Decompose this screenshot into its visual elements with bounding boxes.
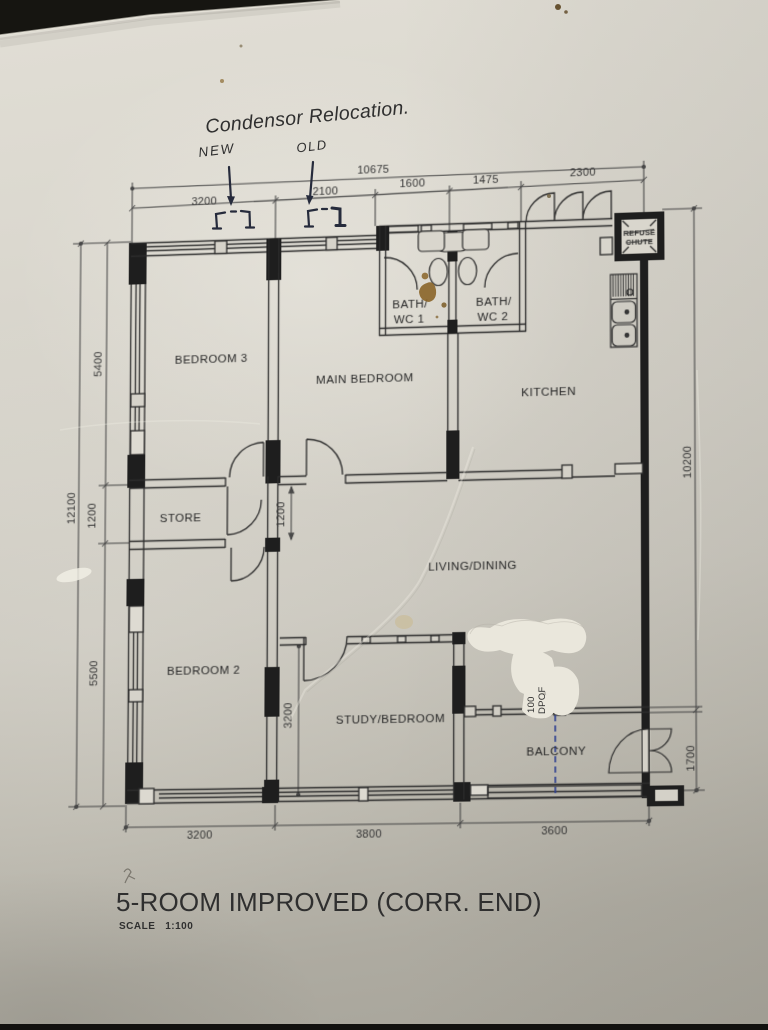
- svg-text:OLD: OLD: [296, 137, 329, 156]
- svg-text:DPOF: DPOF: [537, 686, 548, 714]
- svg-text:100: 100: [526, 696, 537, 713]
- svg-text:Condensor Relocation.: Condensor Relocation.: [204, 96, 410, 138]
- svg-text:5-ROOM IMPROVED (CORR. END): 5-ROOM IMPROVED (CORR. END): [116, 887, 542, 917]
- svg-text:NEW: NEW: [198, 141, 236, 160]
- svg-text:SCALE 1:100: SCALE 1:100: [119, 921, 193, 932]
